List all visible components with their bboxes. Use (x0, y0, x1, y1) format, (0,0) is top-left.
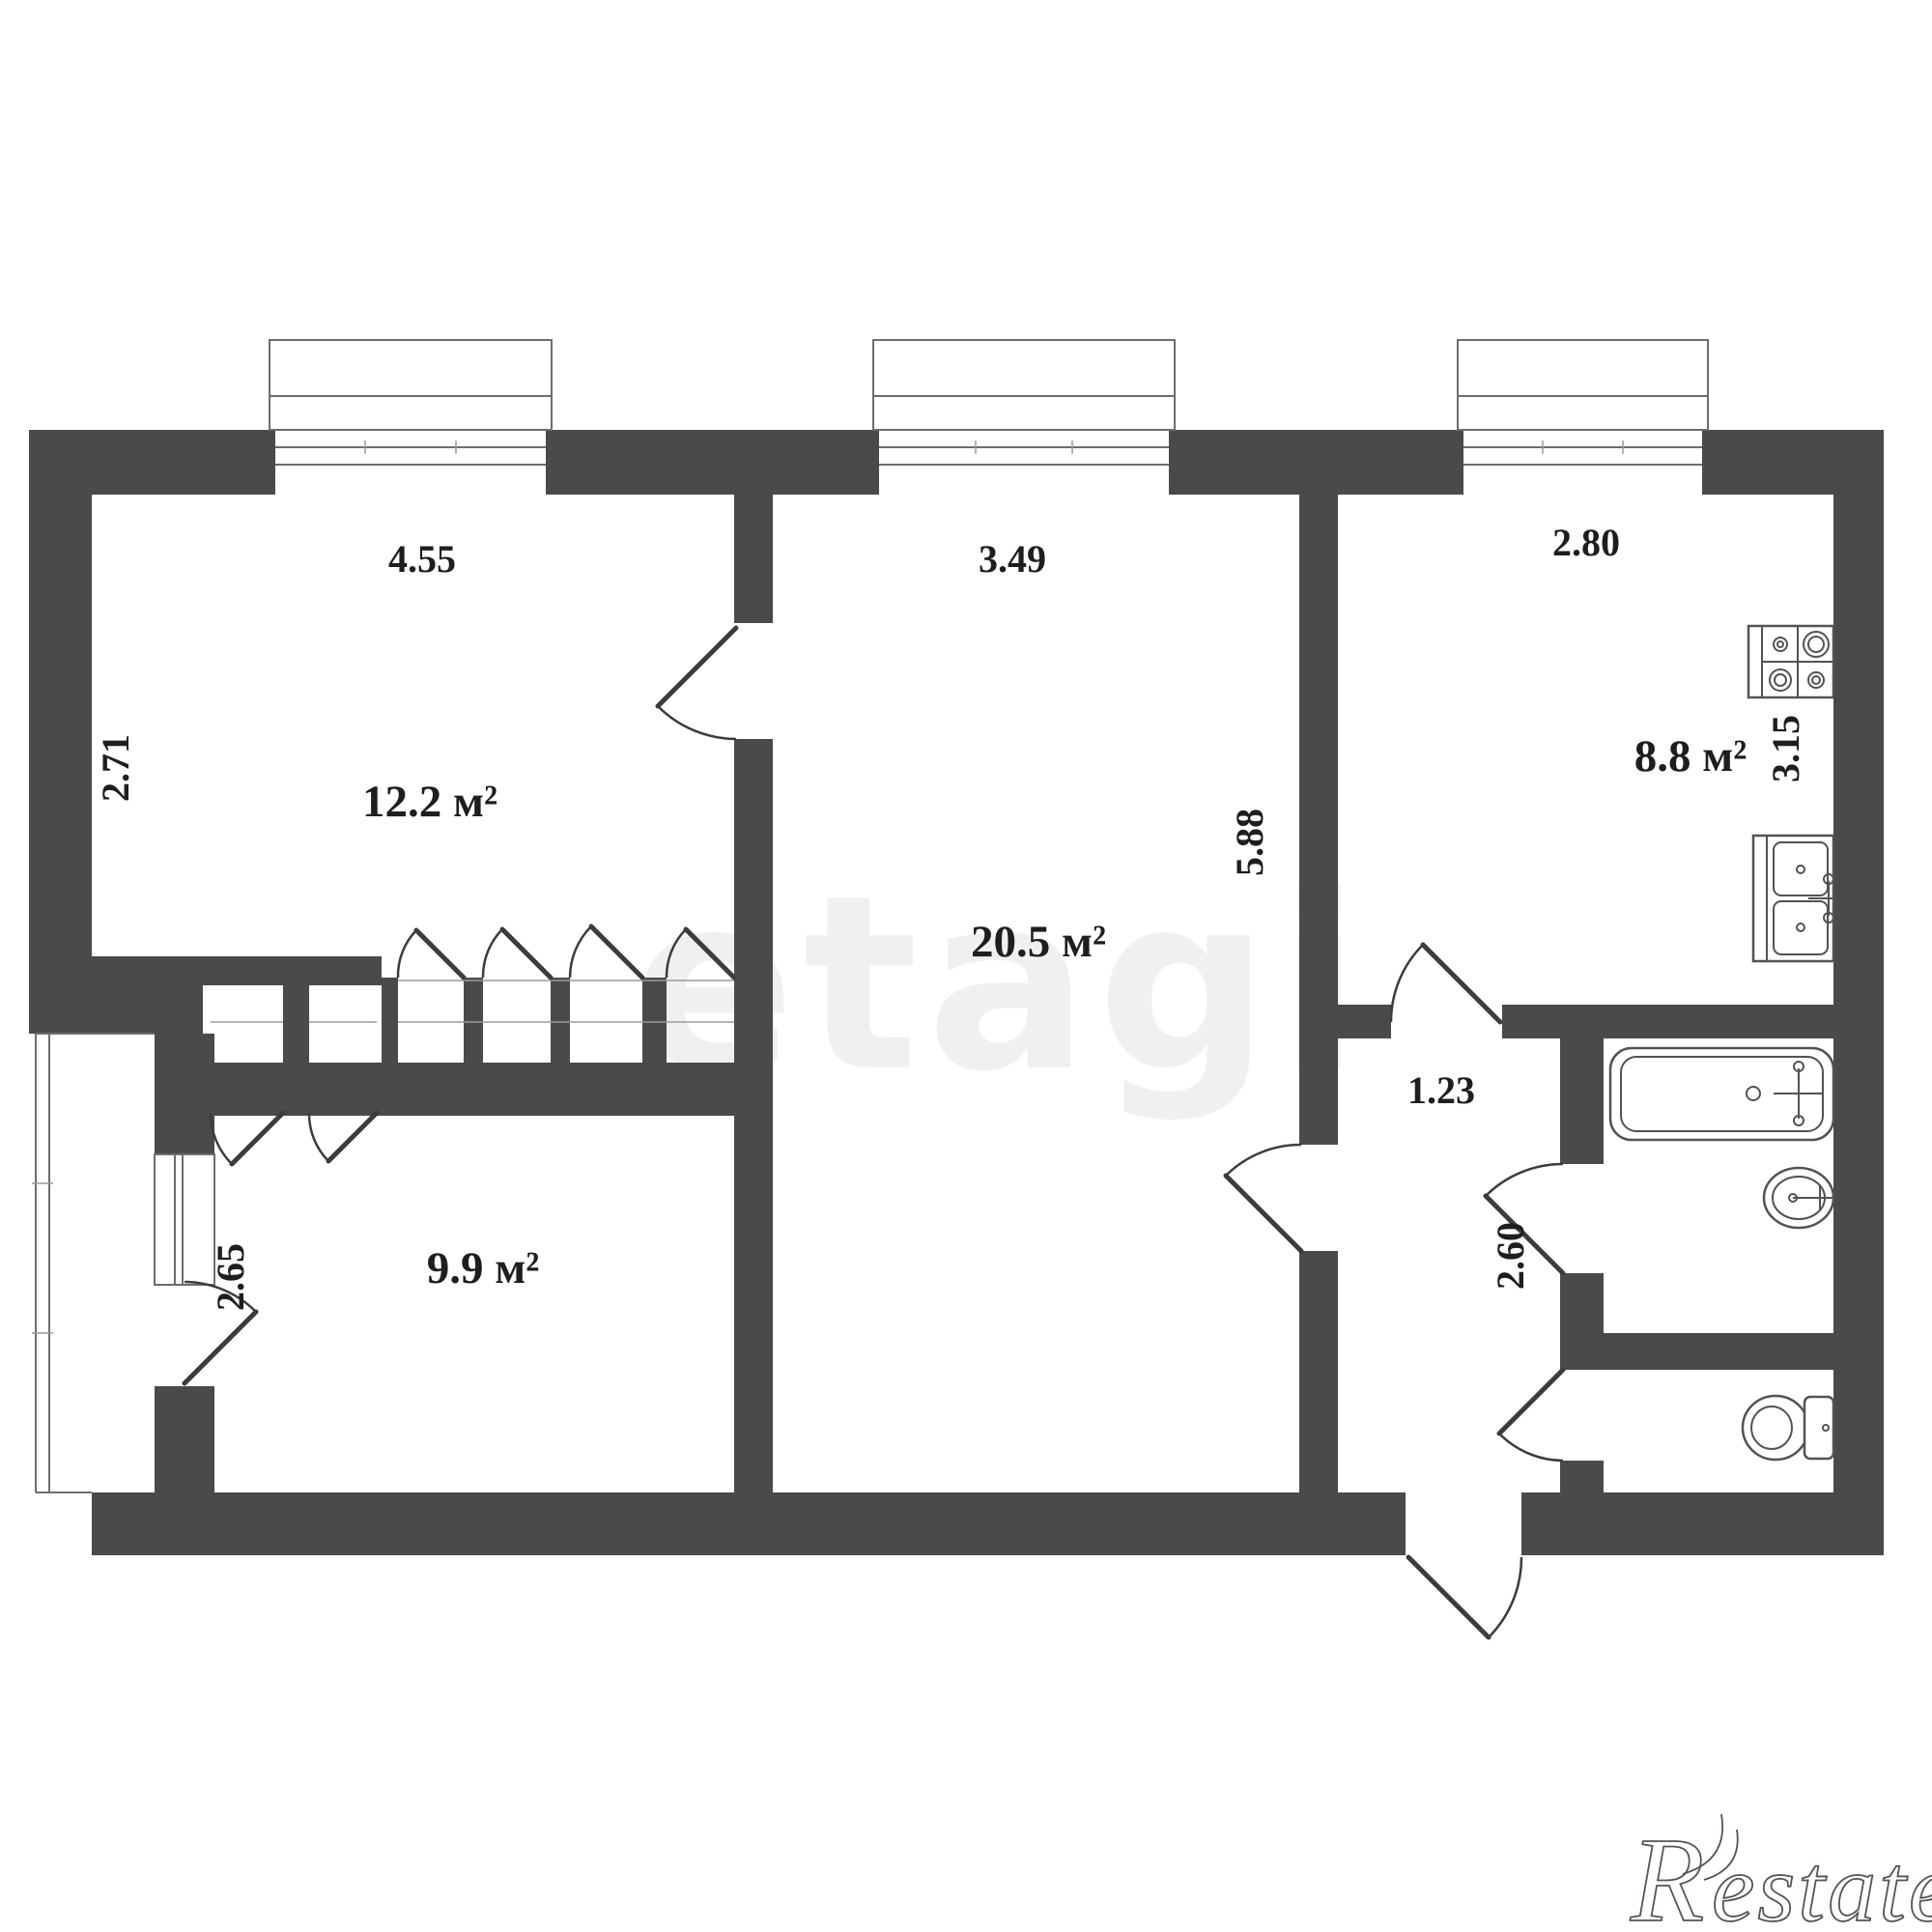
area-kitchen: 8.8 м² (1634, 731, 1747, 781)
dim-kitchen-width: 2.80 (1552, 521, 1620, 564)
logo-text: estate (1712, 1834, 1932, 1932)
stove-icon (1748, 626, 1833, 697)
divider-12-20 (734, 495, 773, 623)
divider-20-kitchen (1299, 495, 1338, 1145)
bathroom-sink-icon (1764, 1168, 1833, 1228)
bath-toilet-wall (1592, 1333, 1833, 1370)
corridor-bath-wall (1560, 1038, 1604, 1164)
toilet-icon (1743, 1396, 1833, 1460)
kitchen-bottom-wall (1338, 1005, 1391, 1038)
area-room12: 12.2 м² (362, 777, 497, 827)
top-wall-segment (546, 430, 879, 495)
divider-20-corridor (1299, 1251, 1338, 1492)
dim-room20-height: 5.88 (1228, 809, 1271, 876)
kitchen-bottom-wall (1502, 1005, 1833, 1038)
dim-room12-height: 2.71 (94, 734, 137, 802)
bathtub-icon (1610, 1048, 1833, 1140)
area-room9: 9.9 м² (427, 1243, 540, 1293)
bottom-wall-segment (1521, 1492, 1884, 1555)
top-wall-segment (1169, 430, 1463, 495)
dim-kitchen-height: 3.15 (1764, 715, 1807, 782)
left-wall (29, 430, 92, 985)
floor-plan-drawing: etagi (0, 0, 1932, 1932)
dim-room12-width: 4.55 (388, 537, 456, 581)
kitchen-sink-icon (1753, 836, 1833, 961)
dim-room9-height: 2.65 (209, 1243, 252, 1311)
room12-bottom-wall (29, 956, 382, 985)
floor-plan-page: etagi (0, 0, 1932, 1932)
area-room20: 20.5 м² (971, 917, 1106, 967)
right-wall (1833, 430, 1884, 1555)
corridor-bath-wall (1560, 1461, 1604, 1492)
balcony-wall-lower (155, 1386, 214, 1492)
bottom-wall-segment (92, 1492, 1406, 1555)
closet-back-wall (200, 1063, 773, 1116)
divider-9-20 (734, 739, 773, 1492)
dim-room20-width: 3.49 (979, 537, 1046, 581)
balcony-wall-upper (155, 1034, 214, 1154)
logo-letter-r: R (1630, 1814, 1704, 1932)
dim-corridor-height: 2.60 (1489, 1222, 1532, 1290)
closet-divider (283, 985, 309, 1063)
dim-corridor-width: 1.23 (1407, 1068, 1475, 1112)
